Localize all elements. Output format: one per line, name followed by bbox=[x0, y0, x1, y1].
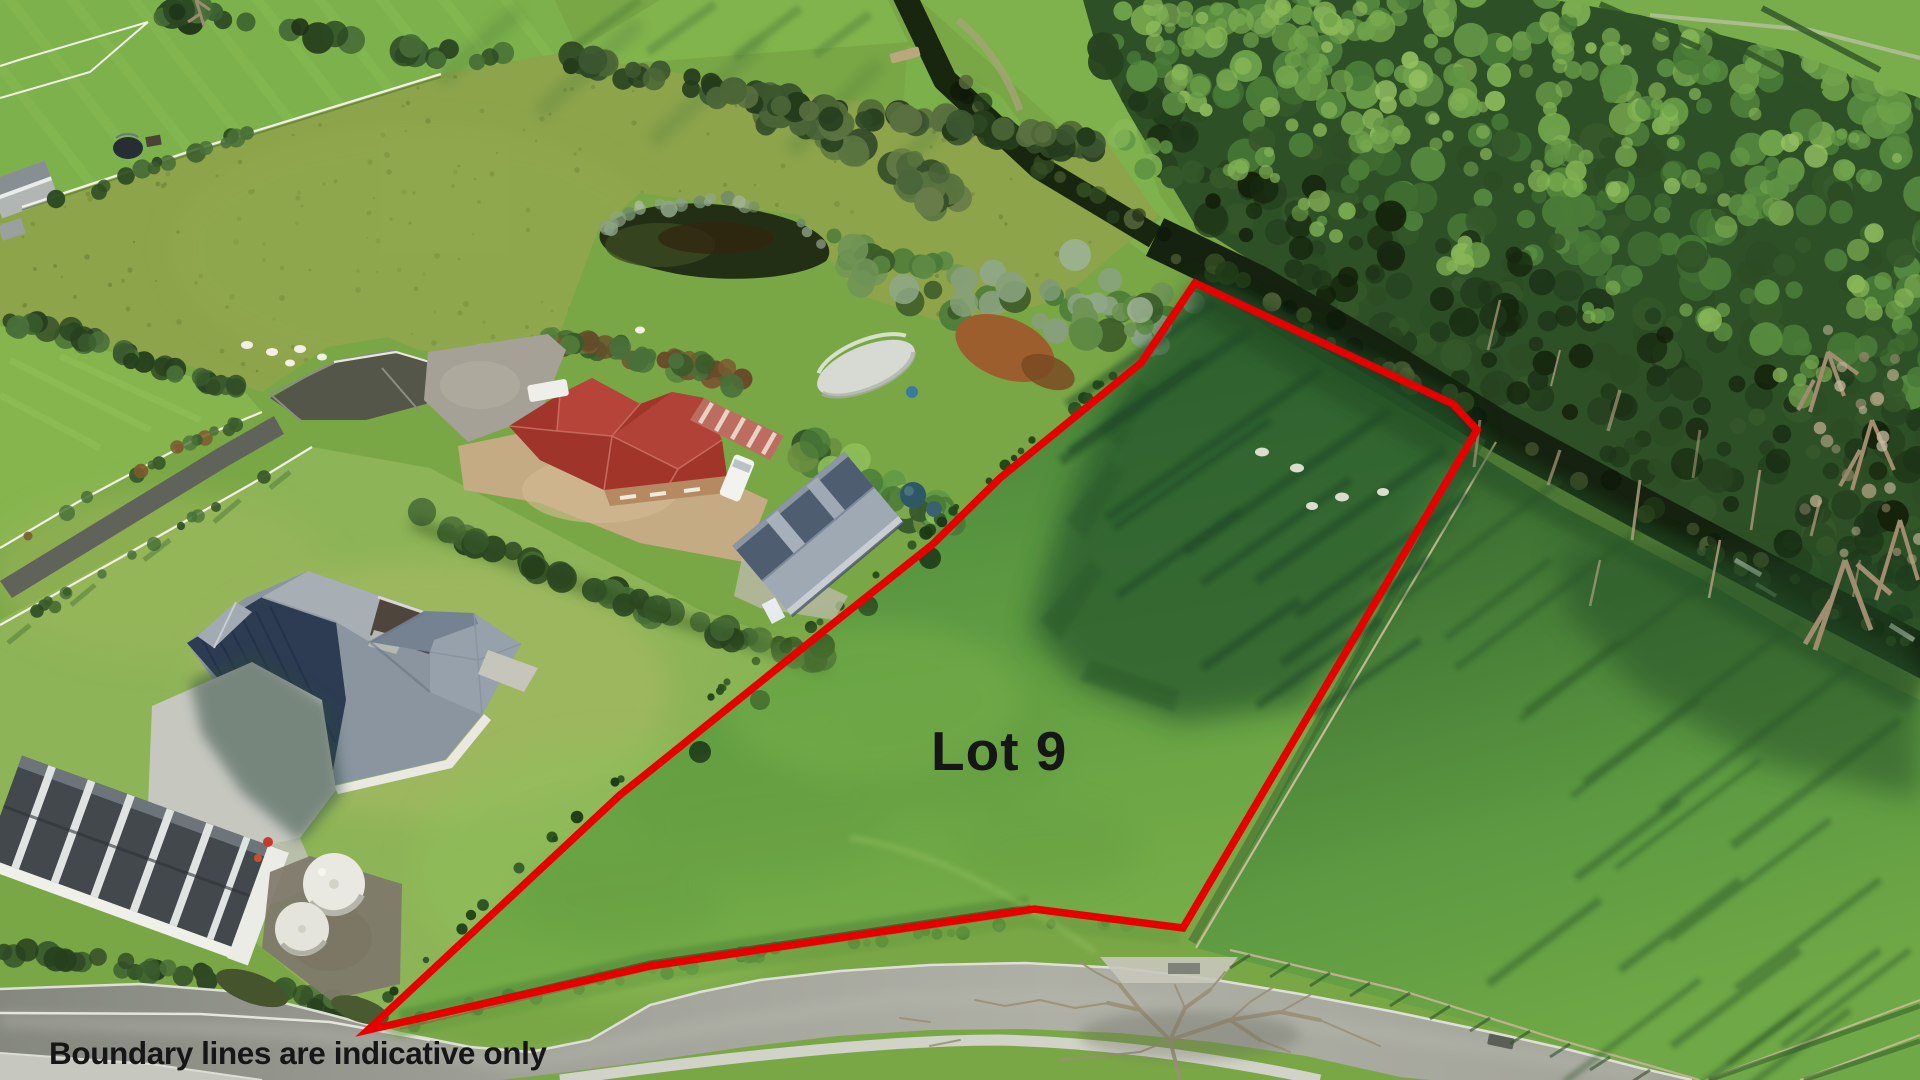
svg-text:Lot 9: Lot 9 bbox=[931, 720, 1067, 782]
svg-text:Boundary lines are indicative: Boundary lines are indicative only bbox=[49, 1035, 547, 1071]
